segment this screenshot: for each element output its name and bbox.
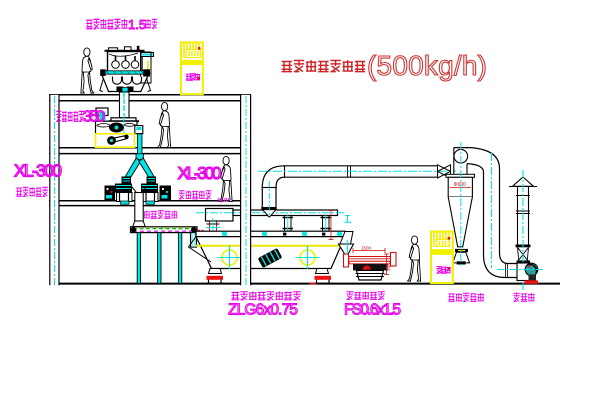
svg-text:FS0.6x1.5: FS0.6x1.5 (344, 302, 401, 319)
svg-text:350: 350 (83, 109, 105, 126)
svg-text:ZLG6x0.75: ZLG6x0.75 (228, 302, 298, 319)
svg-text:XL-300: XL-300 (178, 163, 222, 183)
svg-text:Φ600: Φ600 (454, 182, 467, 188)
svg-text:345: 345 (387, 263, 392, 271)
svg-text:1500: 1500 (361, 246, 372, 251)
svg-text:XL-300: XL-300 (14, 161, 62, 181)
svg-text:(500kg/h): (500kg/h) (367, 50, 487, 81)
svg-text:1.5: 1.5 (128, 17, 146, 32)
